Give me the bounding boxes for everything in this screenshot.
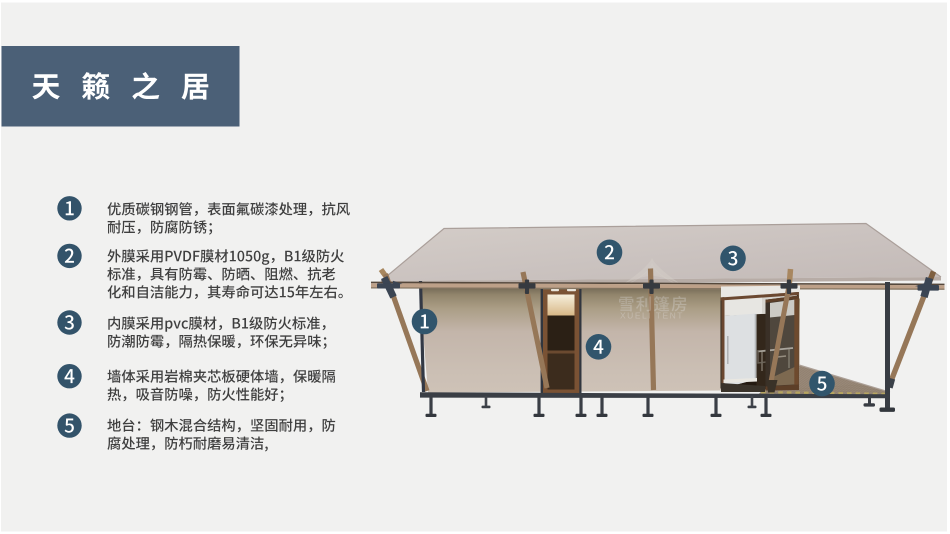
svg-text:XUELI TENT: XUELI TENT bbox=[620, 311, 684, 321]
